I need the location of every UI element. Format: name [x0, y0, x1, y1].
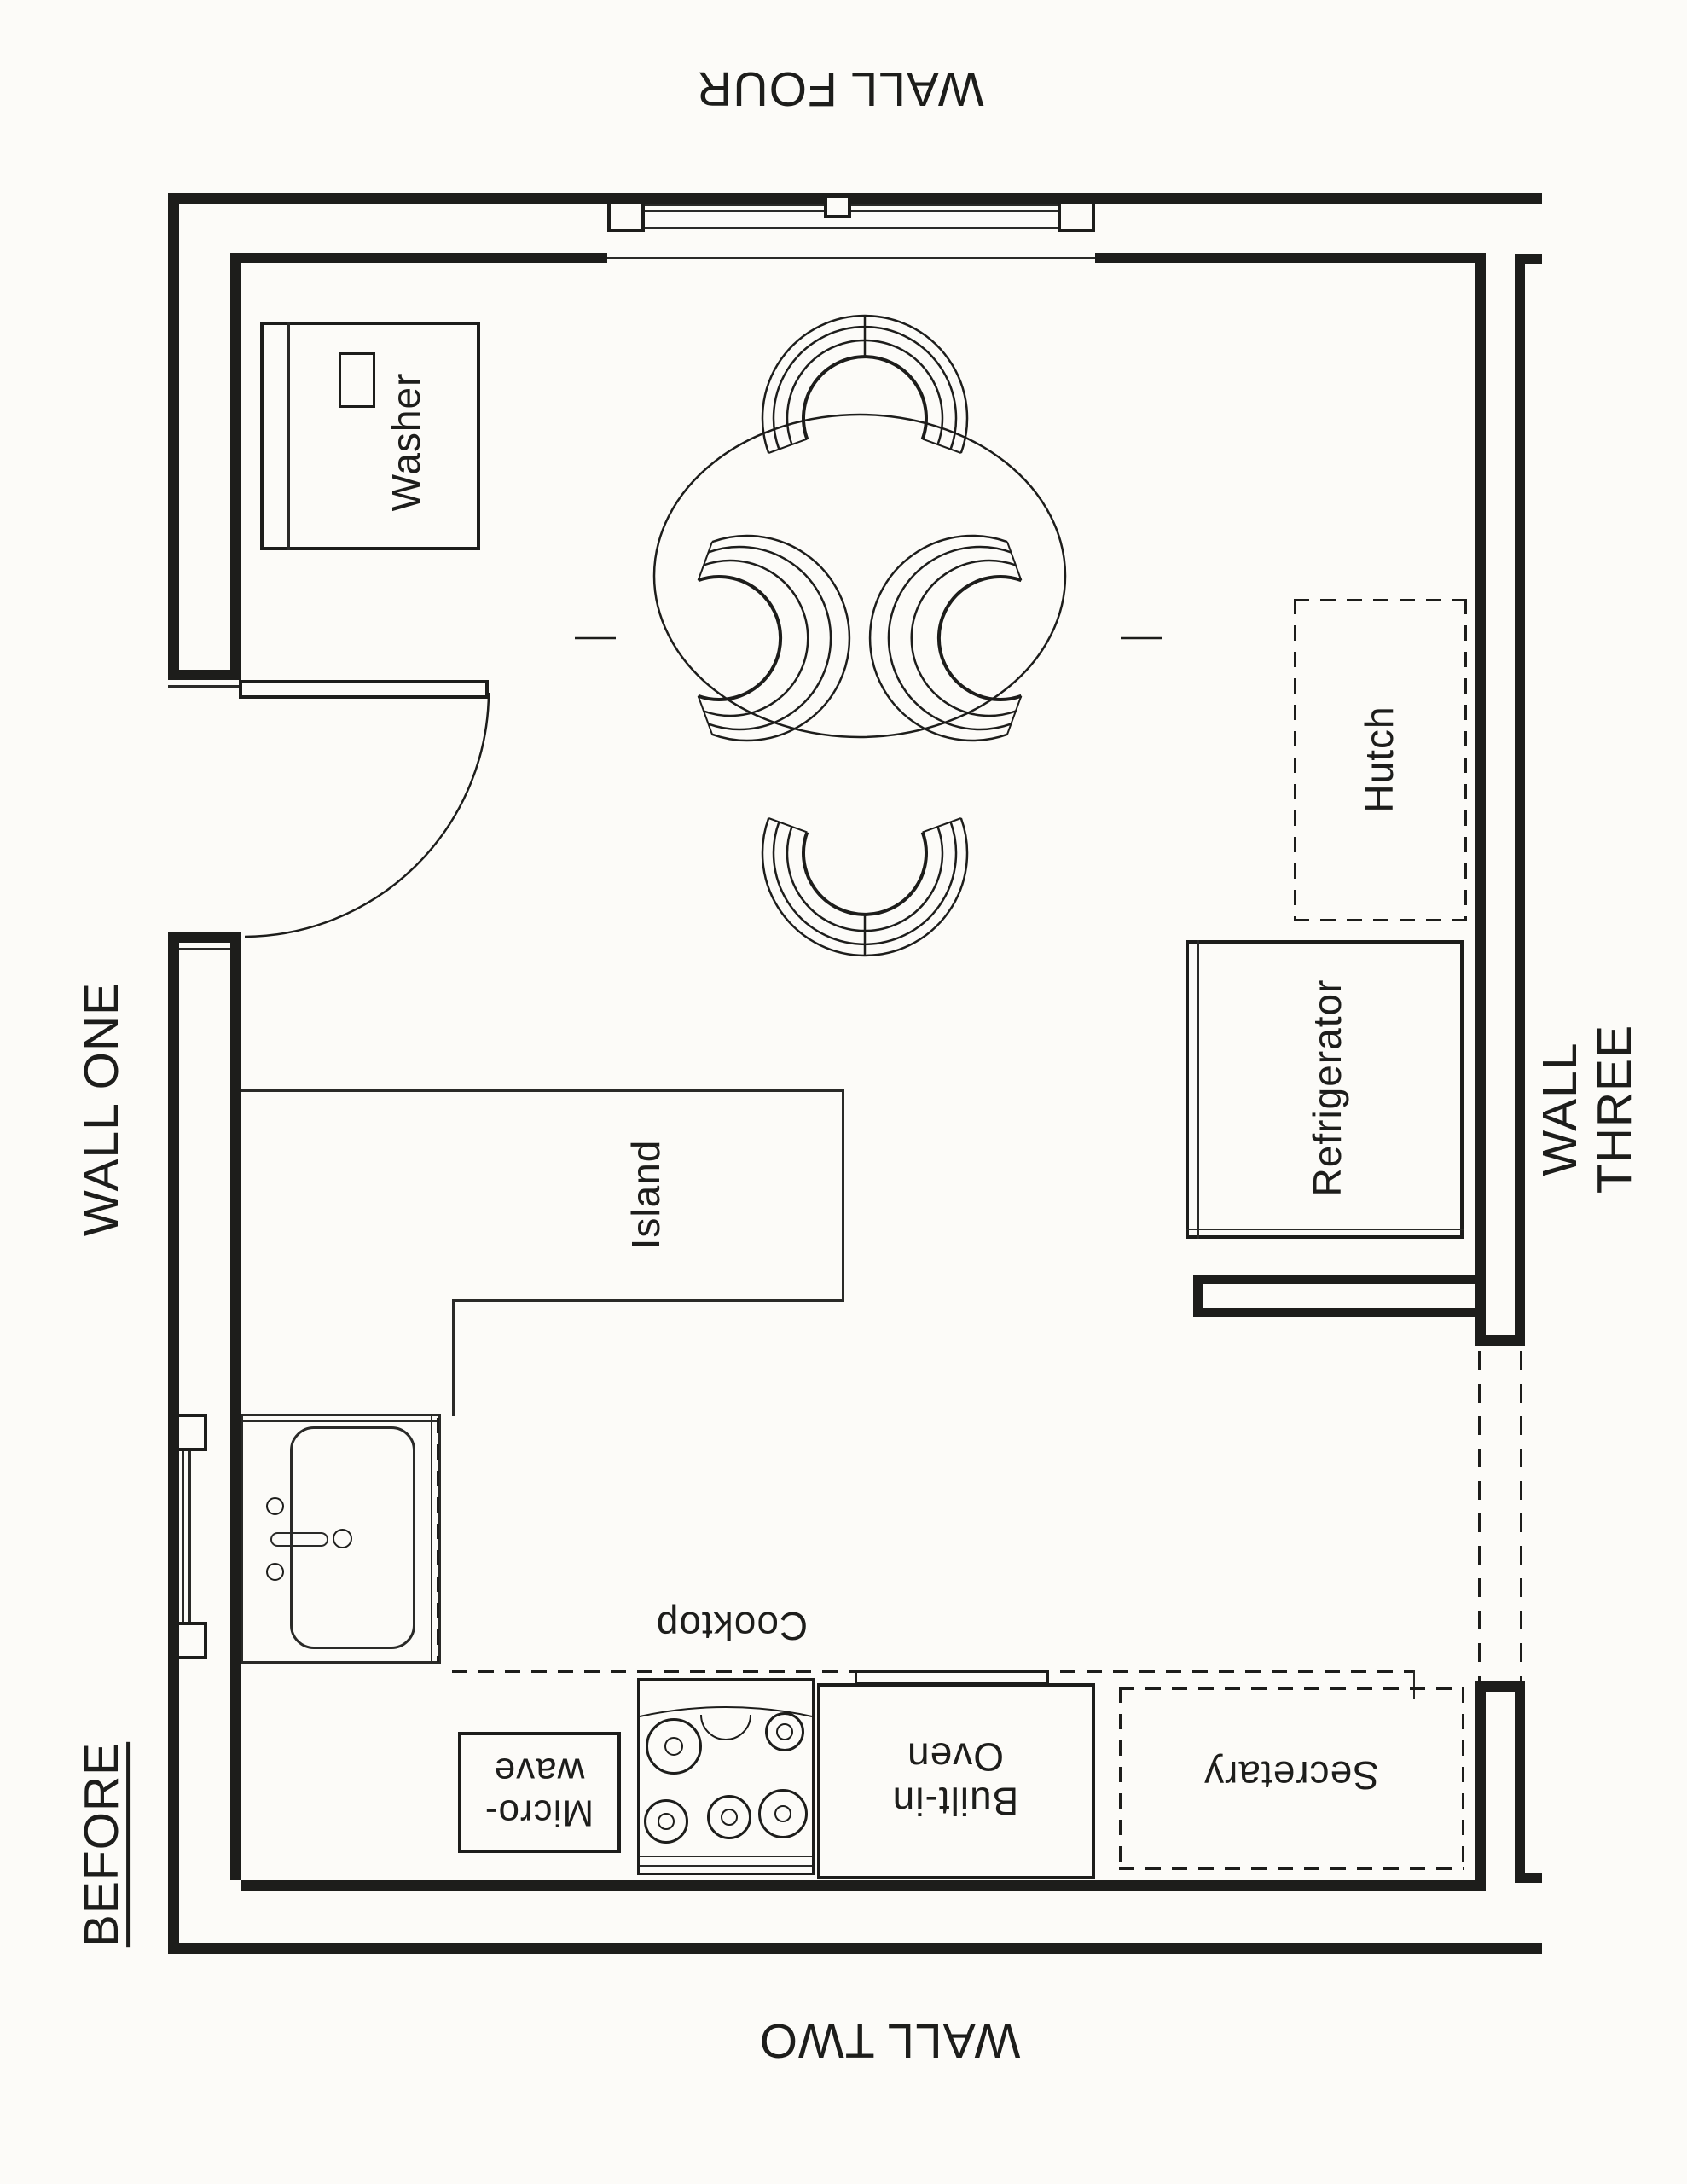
cooktop-burner-upper-right-center [776, 1723, 793, 1740]
window-top-bracket-right [1058, 195, 1095, 232]
window-left-bracket-bottom [170, 1622, 207, 1659]
door-jamb-line-top [168, 685, 241, 688]
island-counter-leg-edge [452, 1299, 455, 1416]
wall-two-label: WALL TWO [759, 2013, 1021, 2067]
hutch-dashed-left [1294, 599, 1296, 921]
floor-plan-page: Washer Hutch Refrigerator Island Micro- … [0, 0, 1687, 2184]
wall-two-inner-face [241, 1880, 1486, 1891]
wall-four-outer-face [168, 193, 1542, 204]
hutch-dashed-bottom [1294, 919, 1467, 921]
window-left-bracket-top [170, 1414, 207, 1451]
window-top-sill-line [645, 227, 1058, 229]
wall-return-below-refrigerator [1193, 1275, 1486, 1317]
secretary-dashed-right [1462, 1687, 1464, 1870]
wall-four-inner-face-left [239, 253, 607, 263]
faucet-knob-bottom [266, 1563, 284, 1581]
cooktop-burner-upper-left-center [664, 1737, 683, 1756]
wall-three-dashed-inner [1478, 1351, 1481, 1681]
cooktop-burner-lower-left-center [658, 1813, 675, 1830]
wall-three-outer-stub-bottom [1515, 1873, 1542, 1883]
chair-right [870, 536, 1162, 741]
washer-label: Washer [385, 373, 429, 512]
island-counter-right-edge [842, 1089, 844, 1302]
sink-counter-inner-top-line [241, 1420, 441, 1422]
wall-four-inner-face-right [1095, 253, 1486, 263]
secretary-label: Secretary [1203, 1752, 1379, 1797]
wall-one-label: WALL ONE [75, 982, 130, 1236]
chair-bottom [762, 818, 967, 955]
faucet-spout [270, 1532, 328, 1547]
upper-cabinet-dashed-line-end-tick [1413, 1670, 1415, 1699]
secretary-dashed-top [1119, 1687, 1464, 1690]
window-top-mullion [824, 195, 851, 218]
chair-top [762, 316, 967, 453]
window-top-bracket-left [607, 195, 645, 232]
wall-one-inner-face-lower [230, 932, 241, 1880]
wall-two-outer-face [168, 1943, 1542, 1954]
island-label: Island [624, 1140, 669, 1250]
door-jamb-cap-top [168, 670, 241, 680]
wall-three-inner-face-lower [1475, 1692, 1486, 1880]
oven-door-tab [855, 1670, 1049, 1684]
window-left-glazing-line-1 [182, 1451, 184, 1622]
faucet-knob-top [266, 1497, 284, 1515]
window-top-glazing-line-1 [645, 204, 1058, 206]
island-counter-top-edge [241, 1089, 844, 1092]
window-top-glazing-line-2 [645, 210, 1058, 212]
hutch-label: Hutch [1358, 706, 1402, 812]
cooktop-burner-lower-right-center [774, 1805, 791, 1822]
refrigerator-inner-left-line [1197, 940, 1199, 1239]
oven-label: Built-in Oven [892, 1734, 1019, 1822]
refrigerator-label: Refrigerator [1306, 979, 1350, 1197]
wall-three-inner-face-upper [1475, 254, 1486, 1335]
wall-one-outer-face-upper [168, 193, 179, 680]
hutch-dashed-right [1464, 599, 1467, 921]
microwave-label: Micro- wave [484, 1750, 594, 1834]
sink-drain [333, 1529, 352, 1548]
upper-cabinet-dashed-line-left [437, 1418, 439, 1662]
washer-detail-box [339, 352, 375, 408]
island-counter-bottom-edge [452, 1299, 844, 1302]
dining-table [654, 415, 1065, 737]
cooktop-label: Cooktop [656, 1603, 808, 1647]
hutch-dashed-top [1294, 599, 1467, 601]
wall-three-cap-upper [1475, 1335, 1525, 1346]
wall-one-inner-face-upper [230, 253, 241, 680]
window-top-inner-line [607, 257, 1095, 259]
cooktop-bottom-line-2 [640, 1865, 812, 1867]
door-leaf [239, 680, 489, 699]
wall-four-label: WALL FOUR [696, 61, 983, 115]
secretary-dashed-left [1119, 1687, 1122, 1870]
cooktop-burner-lower-center-center [721, 1809, 738, 1826]
washer-side-panel-line [287, 322, 290, 550]
door-swing-arc [245, 693, 489, 937]
cooktop-bottom-line-1 [640, 1856, 812, 1857]
wall-three-label: WALL THREE [1533, 1025, 1643, 1194]
before-label: BEFORE [75, 1742, 130, 1947]
refrigerator-inner-bottom-line [1186, 1228, 1464, 1230]
wall-three-outer-face-lower [1515, 1692, 1525, 1883]
chair-left [575, 536, 849, 741]
secretary-dashed-bottom [1119, 1867, 1464, 1870]
wall-three-dashed-outer [1520, 1351, 1522, 1681]
cooktop-outline [637, 1678, 815, 1875]
window-left-glazing-line-2 [188, 1451, 191, 1622]
wall-three-outer-face-upper [1515, 254, 1525, 1335]
wall-three-cap-lower [1475, 1681, 1525, 1692]
sink-counter-inner-right-line [431, 1414, 432, 1664]
